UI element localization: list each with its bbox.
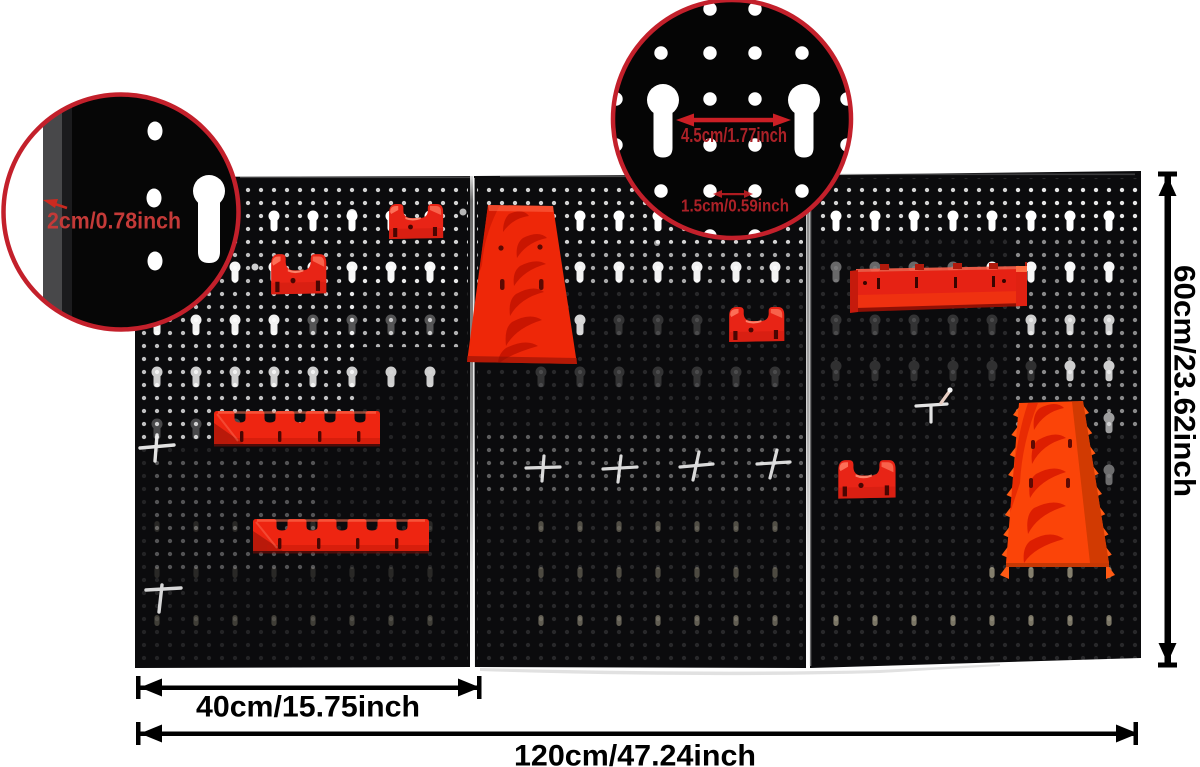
svg-text:2cm/0.78inch: 2cm/0.78inch: [47, 208, 181, 234]
svg-text:1.5cm/0.59inch: 1.5cm/0.59inch: [681, 196, 789, 216]
svg-text:60cm/23.62inch: 60cm/23.62inch: [1168, 265, 1200, 497]
svg-text:120cm/47.24inch: 120cm/47.24inch: [514, 740, 756, 767]
svg-text:40cm/15.75inch: 40cm/15.75inch: [196, 691, 420, 724]
svg-text:4.5cm/1.77inch: 4.5cm/1.77inch: [681, 125, 787, 147]
